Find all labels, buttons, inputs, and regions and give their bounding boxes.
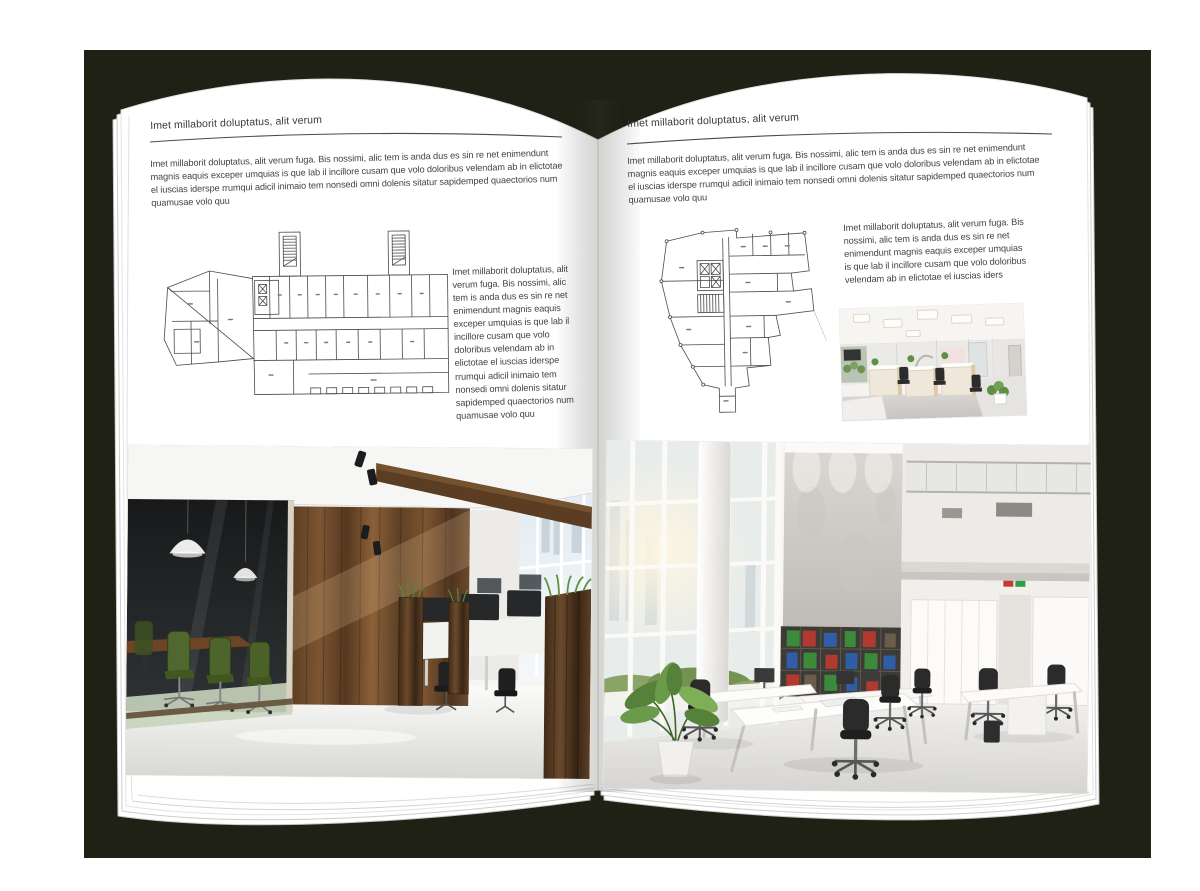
- right-office-photo: [603, 440, 1091, 793]
- right-side-text: Imet millaborit doluptatus, alit verum f…: [843, 216, 1031, 288]
- magazine-mockup: Imet millaborit doluptatus, alit verum I…: [0, 0, 1200, 891]
- floor-plan-left: [157, 226, 455, 415]
- left-header-rule: [149, 129, 564, 147]
- left-office-photo: [126, 445, 593, 779]
- left-side-text: Imet millaborit doluptatus, alit verum f…: [452, 262, 583, 422]
- right-small-office-photo: [839, 303, 1026, 421]
- floor-plan-right: [644, 214, 829, 417]
